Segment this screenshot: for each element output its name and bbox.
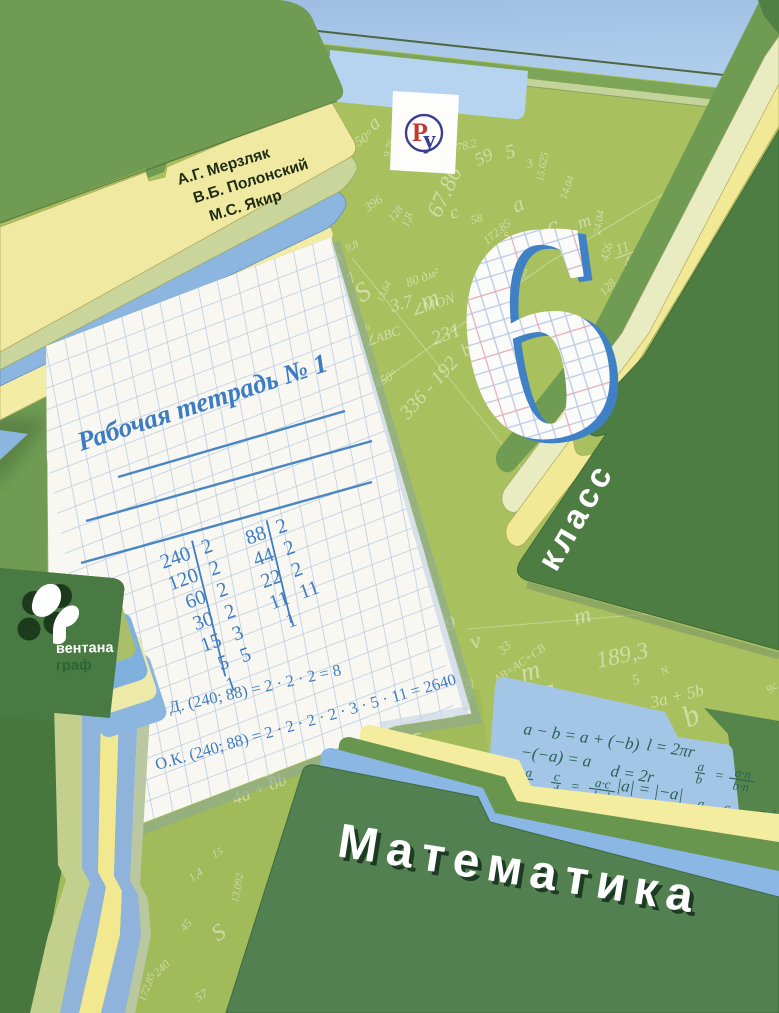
svg-text:b·n: b·n (732, 777, 750, 794)
svg-text:граф: граф (56, 657, 92, 674)
svg-text:у: у (423, 125, 436, 154)
svg-text:вентана: вентана (56, 640, 115, 657)
